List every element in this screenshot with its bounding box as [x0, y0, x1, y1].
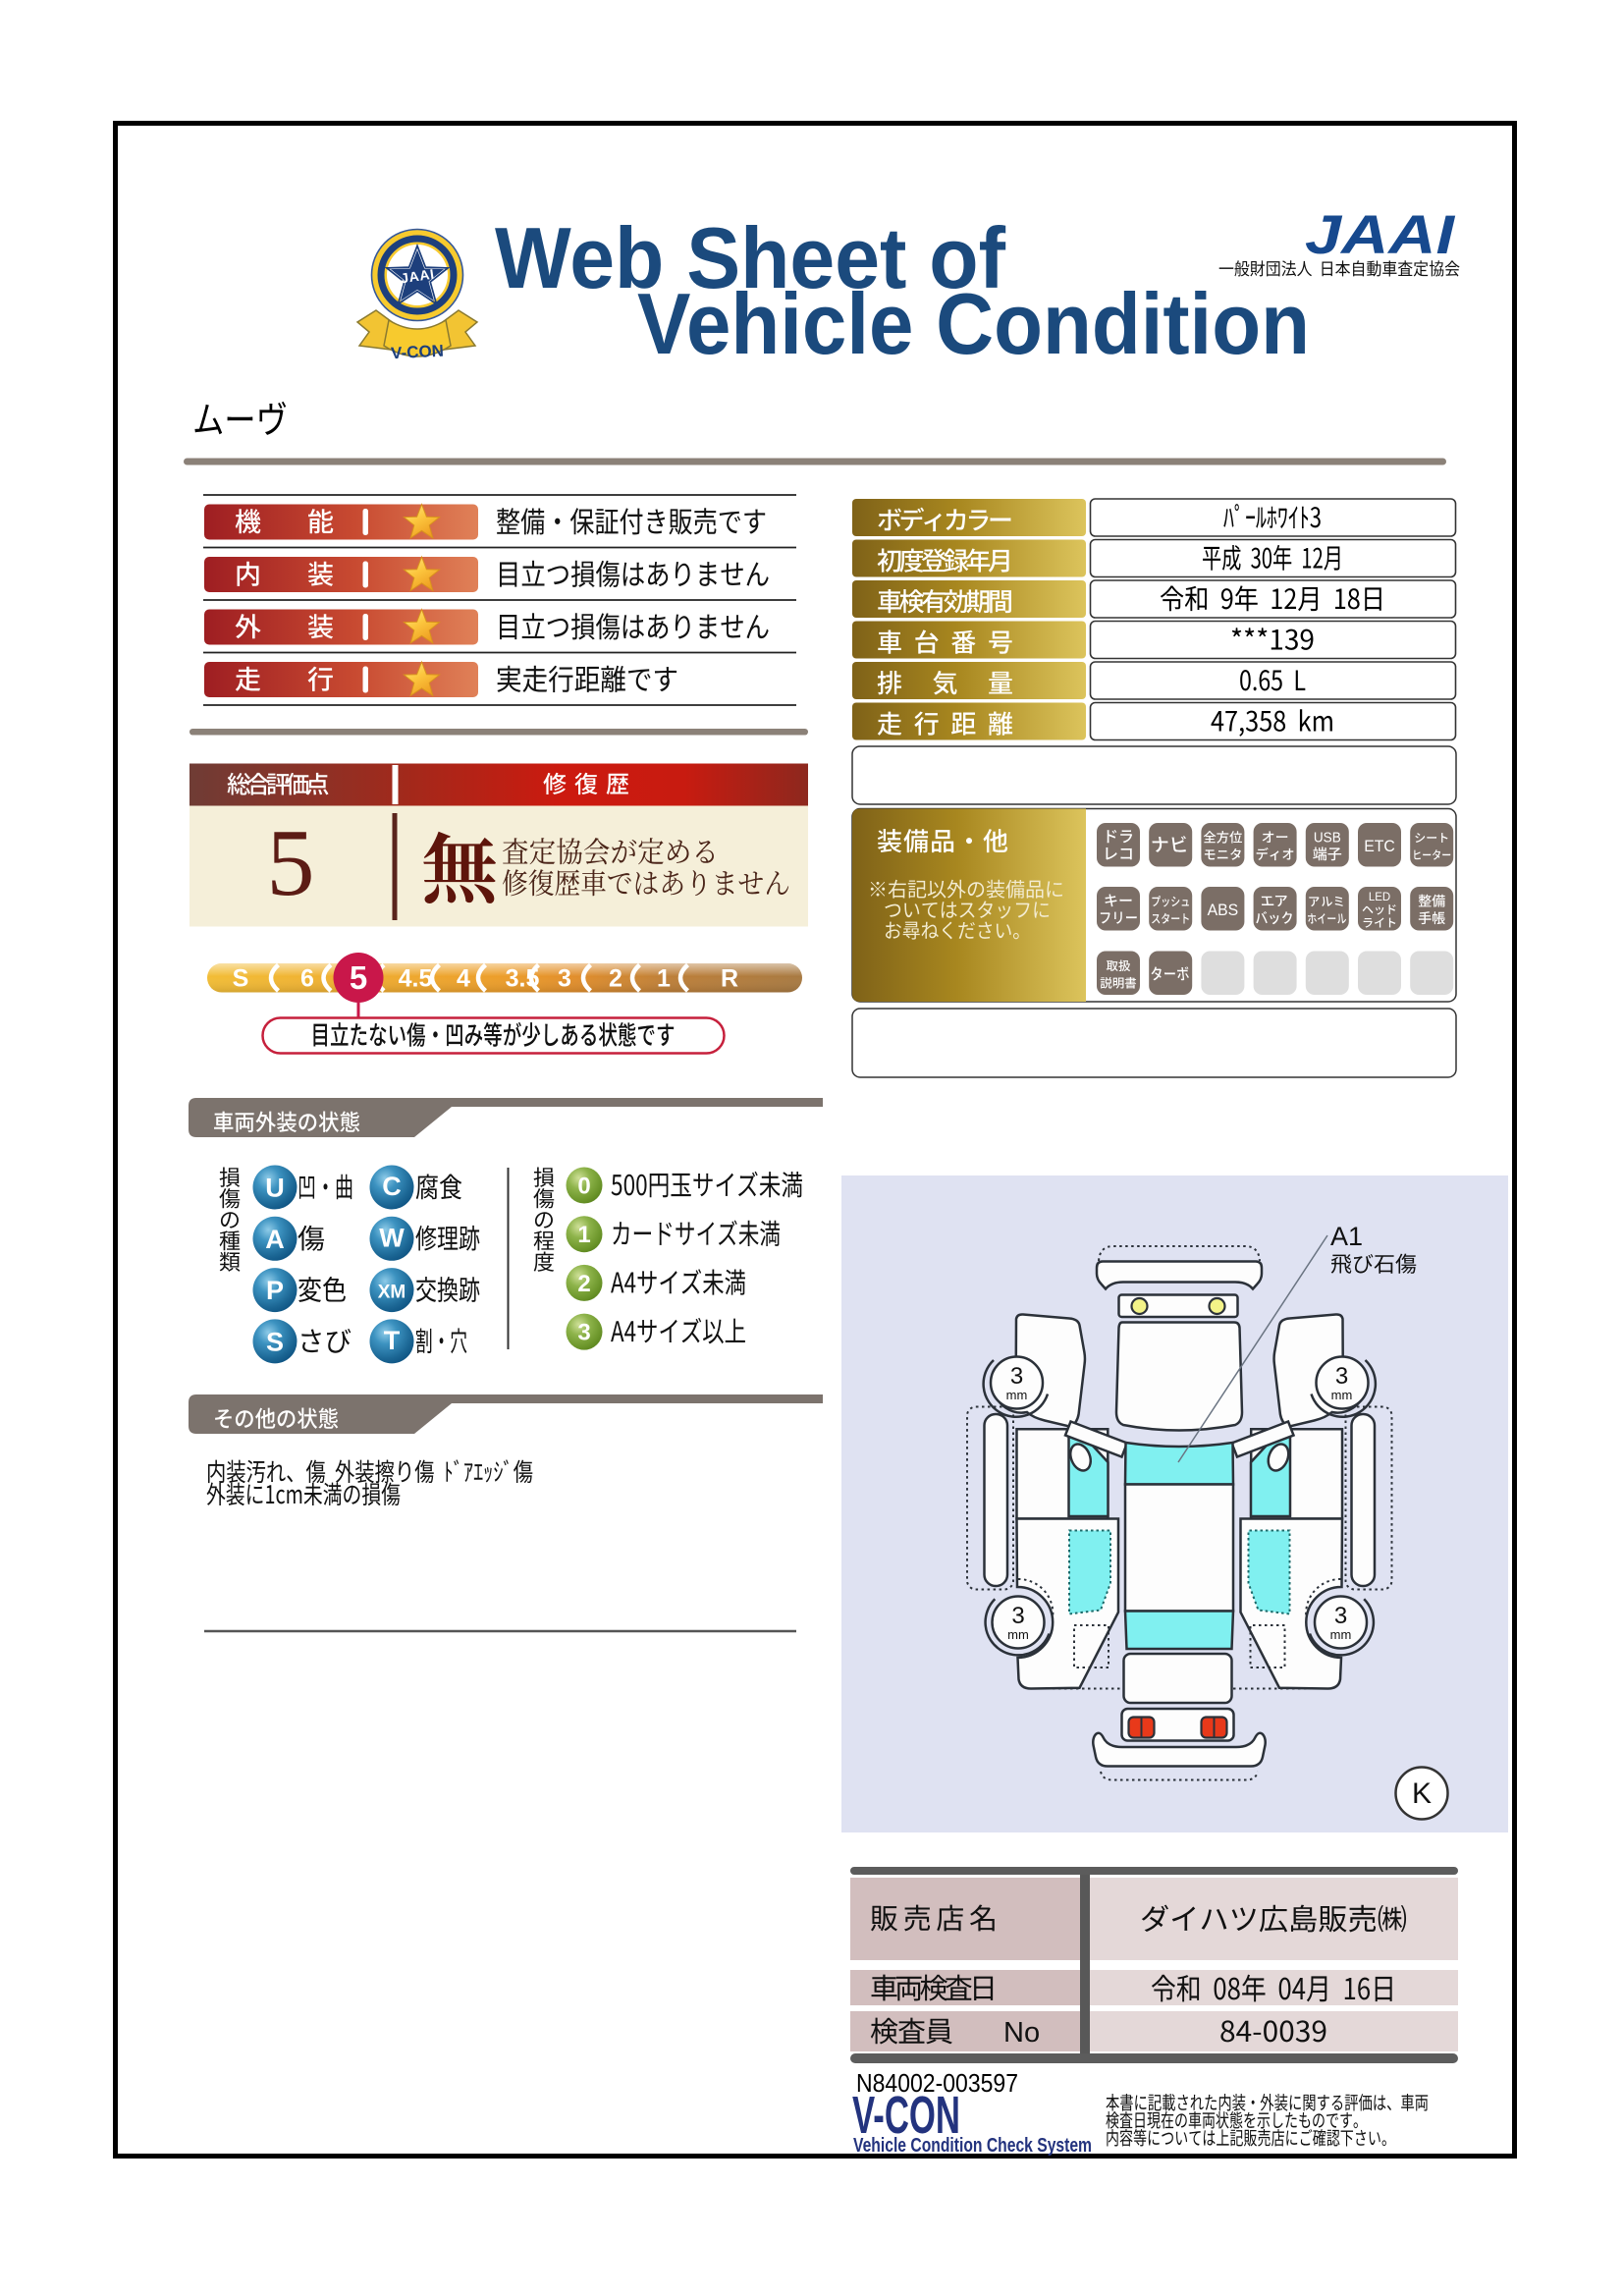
svg-text:ABS: ABS	[1208, 901, 1239, 919]
svg-text:5: 5	[350, 959, 367, 996]
svg-text:T: T	[384, 1326, 401, 1355]
svg-text:1: 1	[577, 1222, 590, 1248]
svg-text:mm: mm	[1330, 1627, 1352, 1642]
svg-text:3.5: 3.5	[506, 965, 540, 993]
svg-text:2: 2	[577, 1271, 590, 1297]
svg-text:S: S	[266, 1327, 284, 1356]
svg-text:USB: USB	[1314, 830, 1341, 847]
svg-text:A1: A1	[1330, 1222, 1363, 1251]
svg-text:K: K	[1412, 1777, 1432, 1810]
svg-text:mm: mm	[1331, 1388, 1353, 1402]
svg-text:3: 3	[1334, 1603, 1347, 1629]
svg-text:U: U	[265, 1174, 285, 1203]
svg-text:mm: mm	[1007, 1627, 1029, 1642]
svg-text:1: 1	[657, 965, 671, 993]
svg-text:mm: mm	[1006, 1388, 1028, 1402]
svg-text:P: P	[266, 1276, 284, 1305]
svg-text:6: 6	[300, 965, 314, 993]
svg-text:3: 3	[1335, 1363, 1348, 1390]
svg-text:4: 4	[457, 965, 470, 993]
svg-text:JAAI: JAAI	[1305, 203, 1456, 265]
svg-text:No: No	[1003, 2017, 1040, 2049]
svg-text:3: 3	[1011, 1603, 1024, 1629]
svg-text:V-CON: V-CON	[391, 342, 445, 363]
svg-text:3: 3	[1010, 1363, 1023, 1390]
svg-text:5: 5	[267, 810, 315, 916]
svg-text:R: R	[721, 965, 738, 993]
svg-text:W: W	[379, 1223, 405, 1252]
svg-text:A: A	[265, 1225, 285, 1254]
svg-text:Vehicle Condition Check System: Vehicle Condition Check System	[853, 2135, 1092, 2157]
svg-text:ETC: ETC	[1364, 837, 1395, 855]
svg-text:4.5: 4.5	[399, 965, 433, 993]
svg-text:C: C	[382, 1172, 402, 1201]
svg-text:0: 0	[577, 1174, 590, 1200]
svg-text:3: 3	[558, 965, 571, 993]
svg-text:2: 2	[609, 965, 622, 993]
svg-text:S: S	[233, 965, 249, 993]
svg-text:3: 3	[577, 1320, 590, 1346]
svg-text:LED: LED	[1369, 890, 1391, 903]
svg-text:XM: XM	[378, 1283, 406, 1303]
svg-text:Vehicle Condition: Vehicle Condition	[637, 275, 1310, 372]
